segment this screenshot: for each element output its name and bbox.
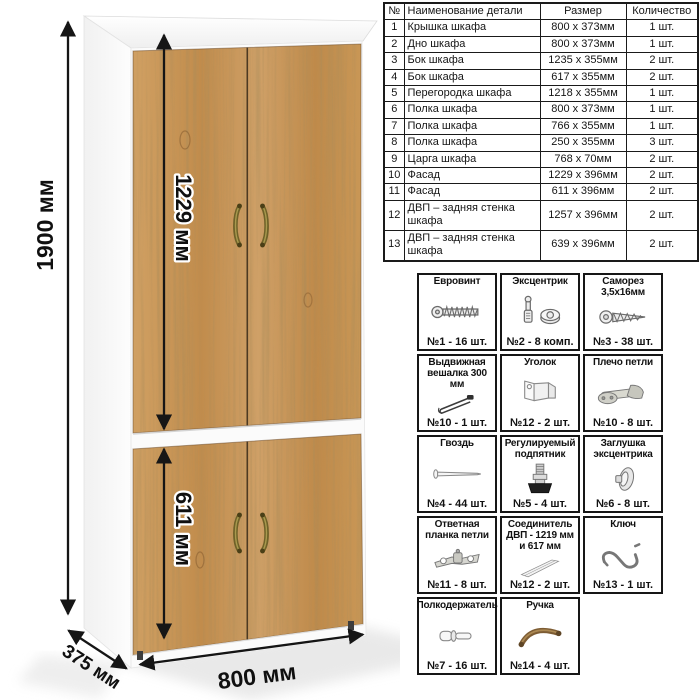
adjustable-foot-icon [503, 461, 577, 498]
corner-bracket-icon [503, 369, 577, 417]
hardware-cell: Полкодержатель№7 - 16 шт. [417, 597, 497, 675]
table-row: 2Дно шкафа800 х 373мм1 шт. [384, 36, 698, 52]
cam-lock-icon [503, 288, 577, 336]
cell-num: 7 [384, 118, 404, 134]
hardware-cell: Выдвижная вешалка 300 мм№10 - 1 шт. [417, 354, 497, 432]
upper-doors [133, 44, 361, 433]
height-dimension-label: 1900 мм [32, 179, 58, 271]
lower-facade-dimension-label: 611 мм [171, 492, 196, 566]
cell-num: 2 [384, 36, 404, 52]
cell-name: ДВП – задняя стенка шкафа [404, 230, 540, 260]
parts-table-header-row: № Наименование детали Размер Количество [384, 3, 698, 20]
hardware-grid: Евровинт№1 - 16 шт.Эксцентрик№2 - 8 комп… [417, 273, 663, 675]
hex-key-icon [586, 531, 660, 579]
hardware-cell: Соединитель ДВП - 1219 мм и 617 мм№12 - … [500, 516, 580, 594]
col-header-name: Наименование детали [404, 3, 540, 20]
col-header-num: № [384, 3, 404, 20]
cell-num: 3 [384, 53, 404, 69]
cell-qty: 2 шт. [626, 168, 698, 184]
hinge-plate-icon [420, 542, 494, 579]
cell-qty: 2 шт. [626, 53, 698, 69]
hardware-cell: Заглушка эксцентрика№6 - 8 шт. [583, 435, 663, 513]
lower-doors [133, 434, 363, 655]
cell-num: 11 [384, 184, 404, 200]
cell-size: 617 х 355мм [540, 69, 626, 85]
hardware-name: Гвоздь [440, 439, 474, 450]
table-row: 3Бок шкафа1235 х 355мм2 шт. [384, 53, 698, 69]
hardware-count: №13 - 1 шт. [593, 579, 653, 591]
table-row: 1Крышка шкафа800 х 373мм1 шт. [384, 20, 698, 36]
hardware-name: Саморез 3,5х16мм [586, 277, 660, 299]
hardware-cell: Саморез 3,5х16мм№3 - 38 шт. [583, 273, 663, 351]
hardware-cell: Эксцентрик№2 - 8 комп. [500, 273, 580, 351]
hdf-connector-icon [503, 552, 577, 579]
cell-size: 1257 х 396мм [540, 200, 626, 230]
table-row: 7Полка шкафа766 х 355мм1 шт. [384, 118, 698, 134]
cell-name: Полка шкафа [404, 135, 540, 151]
cell-size: 611 х 396мм [540, 184, 626, 200]
hardware-cell: Уголок№12 - 2 шт. [500, 354, 580, 432]
assembly-sheet: { "dimensions": { "height": "1900 мм", "… [0, 0, 700, 700]
hardware-count: №14 - 4 шт. [510, 660, 570, 672]
cell-qty: 1 шт. [626, 86, 698, 102]
table-row: 8Полка шкафа250 х 355мм3 шт. [384, 135, 698, 151]
hardware-count: №7 - 16 шт. [427, 660, 487, 672]
table-row: 13ДВП – задняя стенка шкафа639 х 396мм2 … [384, 230, 698, 260]
hardware-count: №10 - 1 шт. [427, 417, 487, 429]
hardware-name: Ответная планка петли [420, 520, 494, 542]
cell-name: Полка шкафа [404, 118, 540, 134]
cabinet-foot [348, 621, 354, 630]
hardware-cell: Ключ№13 - 1 шт. [583, 516, 663, 594]
cell-size: 639 х 396мм [540, 230, 626, 260]
pull-out-hanger-icon [420, 390, 494, 417]
cell-name: Дно шкафа [404, 36, 540, 52]
euro-screw-icon [420, 288, 494, 336]
cell-qty: 1 шт. [626, 102, 698, 118]
handle-icon [503, 612, 577, 660]
hardware-count: №11 - 8 шт. [427, 579, 487, 591]
cell-name: Полка шкафа [404, 102, 540, 118]
col-header-qty: Количество [626, 3, 698, 20]
hardware-name: Заглушка эксцентрика [586, 439, 660, 461]
cell-qty: 2 шт. [626, 184, 698, 200]
hardware-empty-cell [583, 597, 663, 675]
cell-num: 6 [384, 102, 404, 118]
hardware-name: Выдвижная вешалка 300 мм [420, 358, 494, 390]
parts-table: № Наименование детали Размер Количество … [383, 2, 699, 262]
table-row: 10Фасад1229 х 396мм2 шт. [384, 168, 698, 184]
cell-num: 4 [384, 69, 404, 85]
hardware-name: Эксцентрик [512, 277, 567, 288]
hardware-cell: Евровинт№1 - 16 шт. [417, 273, 497, 351]
cell-size: 1218 х 355мм [540, 86, 626, 102]
hardware-cell: Ответная планка петли№11 - 8 шт. [417, 516, 497, 594]
hardware-name: Ручка [526, 601, 554, 612]
hardware-count: №12 - 2 шт. [510, 417, 570, 429]
cell-qty: 2 шт. [626, 200, 698, 230]
cell-name: ДВП – задняя стенка шкафа [404, 200, 540, 230]
wardrobe-illustration: 1900 мм 1229 мм 611 мм 800 мм 375 мм [0, 0, 400, 700]
cell-num: 13 [384, 230, 404, 260]
cell-size: 800 х 373мм [540, 20, 626, 36]
cell-name: Царга шкафа [404, 151, 540, 167]
cell-qty: 2 шт. [626, 230, 698, 260]
table-row: 6Полка шкафа800 х 373мм1 шт. [384, 102, 698, 118]
cell-name: Фасад [404, 168, 540, 184]
hardware-name: Плечо петли [593, 358, 653, 369]
cell-name: Бок шкафа [404, 69, 540, 85]
cam-cap-icon [586, 461, 660, 498]
cell-size: 250 х 355мм [540, 135, 626, 151]
hardware-name: Соединитель ДВП - 1219 мм и 617 мм [503, 520, 577, 552]
cell-qty: 1 шт. [626, 36, 698, 52]
cell-num: 12 [384, 200, 404, 230]
hardware-count: №4 - 44 шт. [427, 498, 487, 510]
table-row: 11Фасад611 х 396мм2 шт. [384, 184, 698, 200]
hardware-count: №5 - 4 шт. [513, 498, 567, 510]
cell-name: Перегородка шкафа [404, 86, 540, 102]
cell-size: 1235 х 355мм [540, 53, 626, 69]
cell-size: 768 х 70мм [540, 151, 626, 167]
hardware-count: №1 - 16 шт. [427, 336, 487, 348]
table-row: 5Перегородка шкафа1218 х 355мм1 шт. [384, 86, 698, 102]
shelf-pin-icon [420, 612, 494, 660]
cell-num: 5 [384, 86, 404, 102]
hardware-count: №10 - 8 шт. [593, 417, 653, 429]
cell-qty: 2 шт. [626, 69, 698, 85]
hardware-name: Регулируемый подпятник [503, 439, 577, 461]
cell-qty: 1 шт. [626, 20, 698, 36]
cell-size: 800 х 373мм [540, 102, 626, 118]
cell-num: 1 [384, 20, 404, 36]
cell-qty: 1 шт. [626, 118, 698, 134]
cell-num: 8 [384, 135, 404, 151]
cell-name: Крышка шкафа [404, 20, 540, 36]
hardware-name: Полкодержатель [416, 601, 497, 612]
table-row: 4Бок шкафа617 х 355мм2 шт. [384, 69, 698, 85]
upper-facade-dimension-label: 1229 мм [171, 174, 196, 262]
cell-num: 10 [384, 168, 404, 184]
cell-num: 9 [384, 151, 404, 167]
cell-name: Фасад [404, 184, 540, 200]
hardware-count: №3 - 38 шт. [593, 336, 653, 348]
hardware-name: Ключ [610, 520, 636, 531]
cell-size: 800 х 373мм [540, 36, 626, 52]
cell-size: 1229 х 396мм [540, 168, 626, 184]
hinge-arm-icon [586, 369, 660, 417]
nail-icon [420, 450, 494, 498]
hardware-name: Уголок [524, 358, 556, 369]
table-row: 9Царга шкафа768 х 70мм2 шт. [384, 151, 698, 167]
cell-size: 766 х 355мм [540, 118, 626, 134]
cell-qty: 2 шт. [626, 151, 698, 167]
hardware-count: №12 - 2 шт. [510, 579, 570, 591]
hardware-cell: Плечо петли№10 - 8 шт. [583, 354, 663, 432]
hardware-cell: Регулируемый подпятник№5 - 4 шт. [500, 435, 580, 513]
cell-name: Бок шкафа [404, 53, 540, 69]
hardware-cell: Ручка№14 - 4 шт. [500, 597, 580, 675]
hardware-count: №6 - 8 шт. [596, 498, 650, 510]
cabinet-side-panel [84, 16, 131, 668]
table-row: 12ДВП – задняя стенка шкафа1257 х 396мм2… [384, 200, 698, 230]
self-tapping-screw-icon [586, 299, 660, 336]
col-header-size: Размер [540, 3, 626, 20]
cabinet-foot [137, 651, 143, 660]
cell-qty: 3 шт. [626, 135, 698, 151]
hardware-name: Евровинт [434, 277, 481, 288]
hardware-count: №2 - 8 комп. [506, 336, 573, 348]
hardware-cell: Гвоздь№4 - 44 шт. [417, 435, 497, 513]
